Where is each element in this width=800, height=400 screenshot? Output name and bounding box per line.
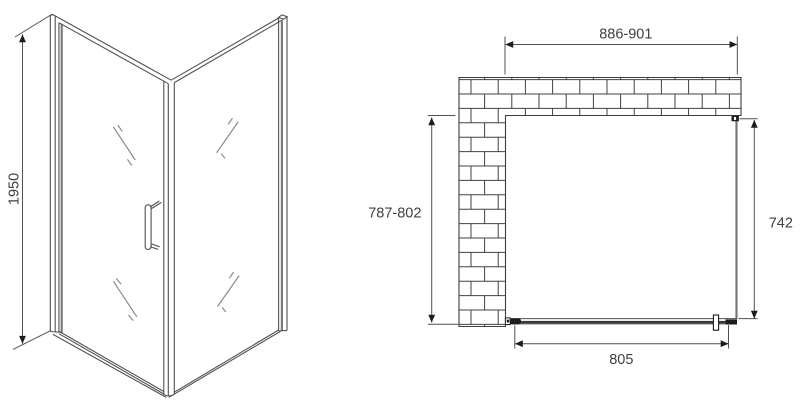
svg-text:742: 742 (769, 216, 793, 232)
svg-text:787-802: 787-802 (368, 206, 421, 222)
svg-text:805: 805 (609, 352, 633, 368)
svg-text:1950: 1950 (7, 173, 23, 205)
svg-text:886-901: 886-901 (599, 27, 652, 43)
